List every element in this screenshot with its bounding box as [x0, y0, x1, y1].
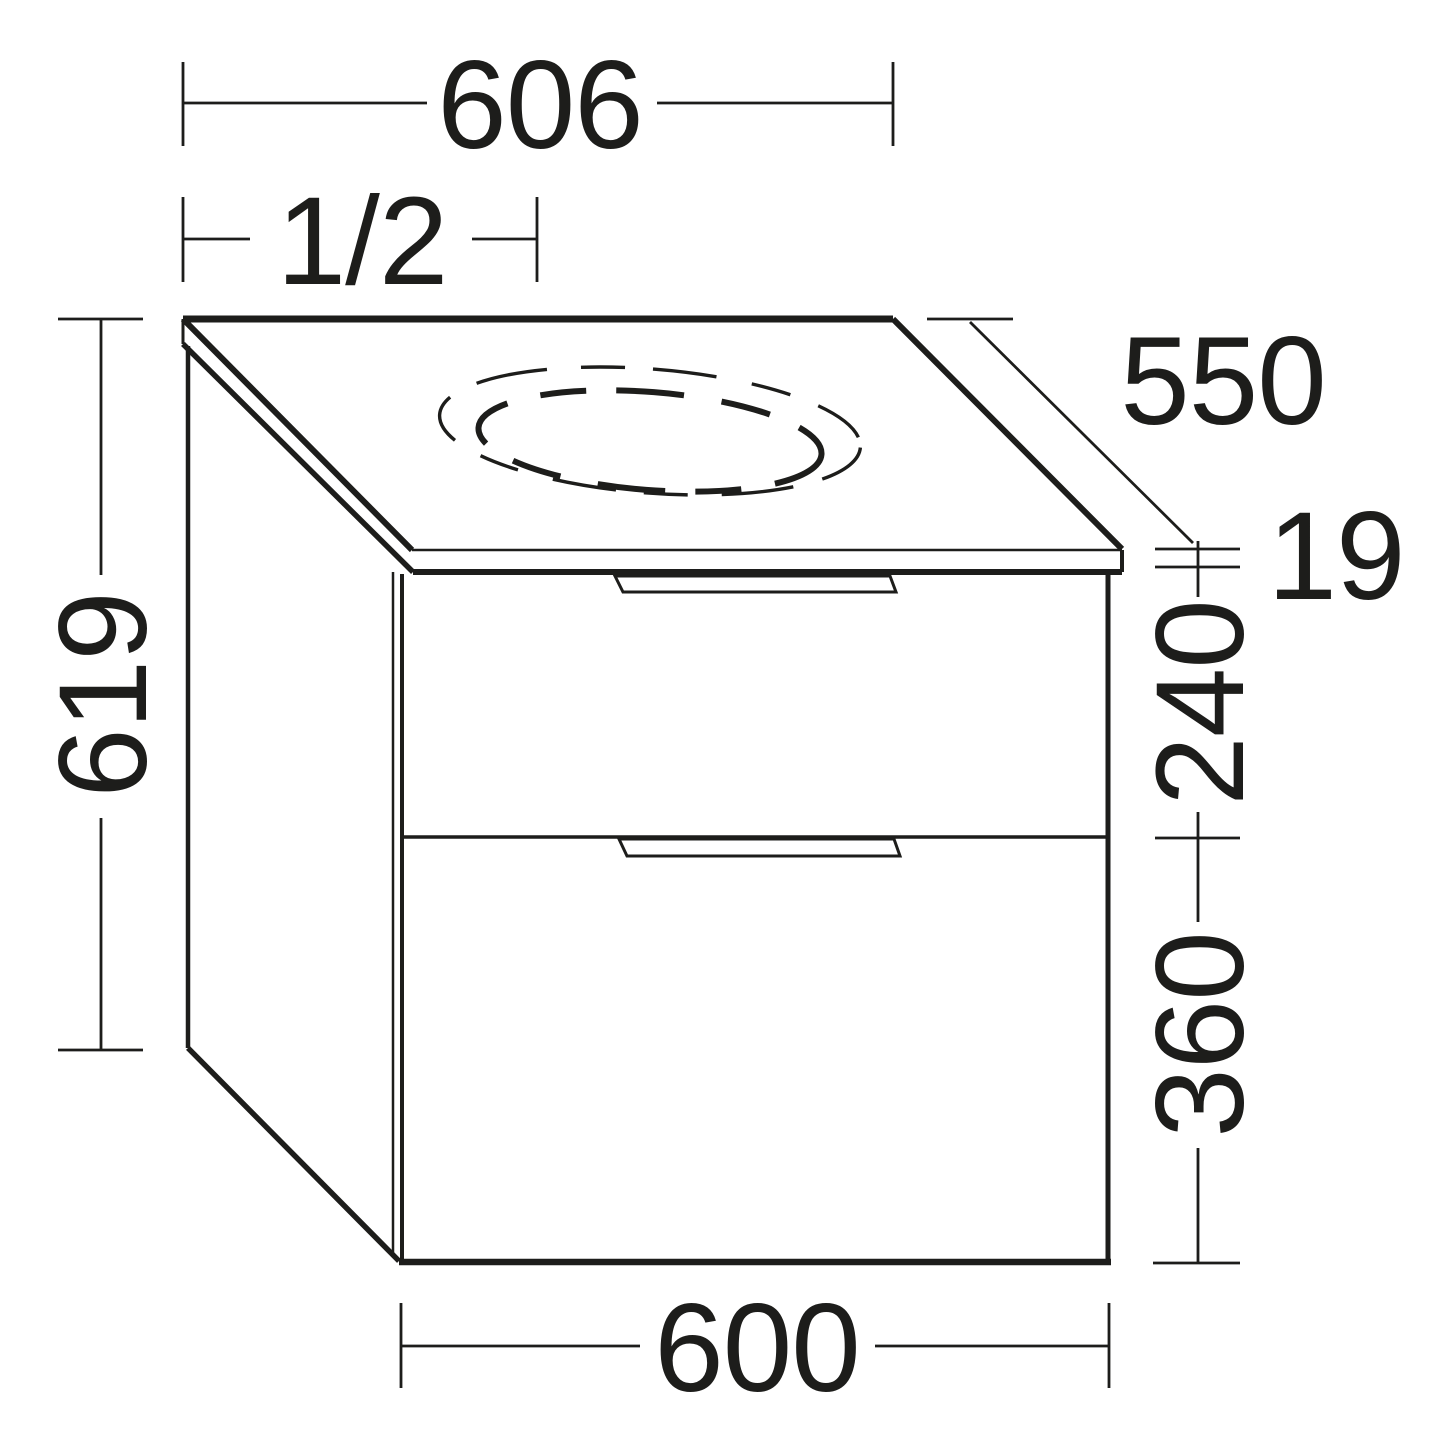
dimension-label: 550: [1120, 312, 1326, 451]
basin-cutout: [435, 353, 865, 510]
technical-drawing-canvas: 606 1/2 550 19 240 360 619: [0, 0, 1449, 1449]
dimension-label: 19: [1267, 487, 1404, 626]
countertop-right-depth-edge: [893, 319, 1122, 549]
dimension-label: 1/2: [277, 172, 448, 311]
dimension-drawing: 606 1/2 550 19 240 360 619: [0, 0, 1449, 1449]
side-panel-bottom-edge: [188, 1048, 399, 1261]
dimension-cutout-position: 1/2: [183, 172, 537, 311]
dimension-body-width: 600: [401, 1279, 1109, 1418]
dimension-label: 240: [1131, 600, 1270, 806]
dimension-total-height: 619: [34, 319, 173, 1050]
dimension-label: 606: [437, 36, 643, 175]
dimension-lower-drawer-height: 360: [1131, 838, 1270, 1263]
countertop-left-depth-edge: [183, 319, 412, 550]
dimension-label: 619: [34, 592, 173, 798]
lower-drawer-handle: [619, 839, 900, 856]
basin-cutout-inner-dashed-ellipse: [475, 379, 826, 504]
countertop: [183, 319, 1122, 572]
dimension-label: 360: [1131, 932, 1270, 1138]
countertop-left-band-edge: [183, 344, 413, 572]
dimension-countertop-width: 606: [183, 36, 893, 175]
upper-drawer-handle: [615, 576, 896, 592]
dimension-countertop-depth: 550: [927, 312, 1326, 549]
dimension-upper-drawer-height: 240: [1131, 600, 1270, 838]
dimension-label: 600: [654, 1279, 860, 1418]
